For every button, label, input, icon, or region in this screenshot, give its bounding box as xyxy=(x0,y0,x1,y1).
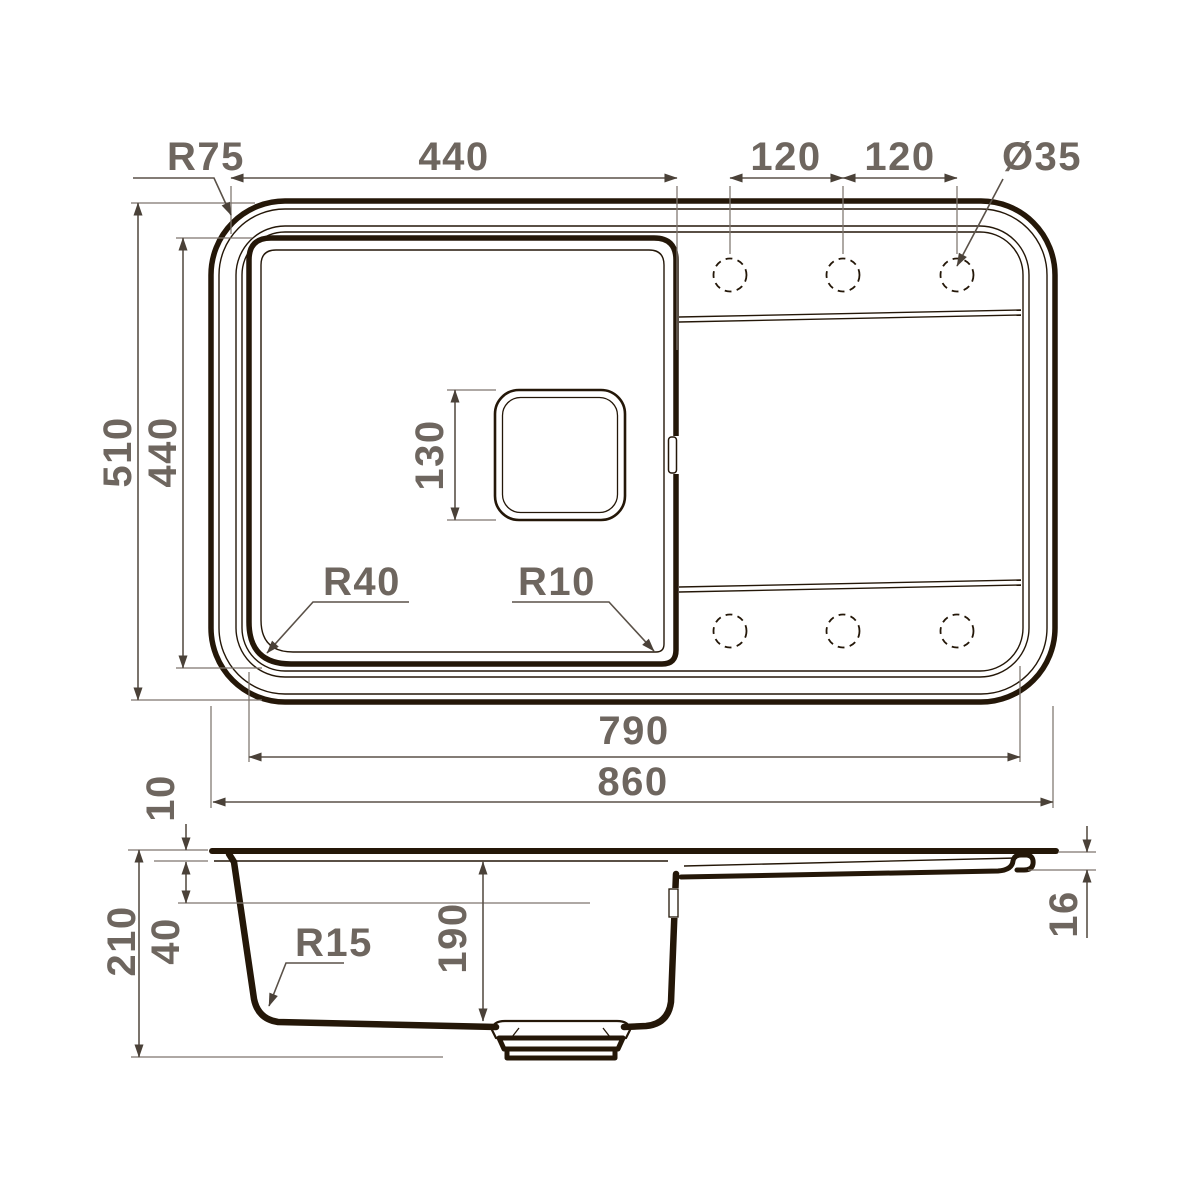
faucet-hole-icon xyxy=(714,615,747,648)
overall-depth-label: 510 xyxy=(96,416,140,487)
rim-height-label: 10 xyxy=(139,774,183,822)
faucet-hole-icon xyxy=(941,615,974,648)
edge-thickness-label: 16 xyxy=(1042,890,1086,938)
drawing-svg: R75 440 120 120 Ø35 510 440 130 R40 R10 … xyxy=(0,0,1200,1200)
sink-dimension-drawing: R75 440 120 120 Ø35 510 440 130 R40 R10 … xyxy=(0,0,1200,1200)
faucet-hole-icon xyxy=(827,615,860,648)
drain-area-corner-radius-label: R10 xyxy=(518,560,596,604)
bottom-corner-radius-label: R15 xyxy=(295,921,373,965)
top-view-outline xyxy=(211,201,1055,702)
leader-bowl-corner-radius xyxy=(267,602,409,653)
hole-pitch-right-label: 120 xyxy=(864,135,935,179)
bowl-depth-label: 440 xyxy=(141,416,185,487)
overall-height-label: 210 xyxy=(100,905,144,976)
drain-square-inner xyxy=(503,398,618,513)
upper-wall-depth-label: 40 xyxy=(144,917,188,965)
side-overflow-mask xyxy=(666,888,681,918)
drain-body-lower xyxy=(507,1049,615,1058)
hole-diameter-label: Ø35 xyxy=(1002,135,1082,179)
overall-length-label: 860 xyxy=(597,760,668,804)
leader-drain-area-corner-radius xyxy=(512,602,654,651)
drainboard-lines xyxy=(679,310,1021,592)
bowl-inner-depth-label: 190 xyxy=(431,902,475,973)
leader-bottom-corner-radius xyxy=(269,963,344,1006)
faucet-hole-icon xyxy=(941,259,974,292)
hole-pitch-left-label: 120 xyxy=(750,135,821,179)
sink-outer-edge-inner-line xyxy=(219,209,1047,694)
rim-inner-edge-line-1 xyxy=(236,226,1029,677)
faucet-hole-icon xyxy=(827,259,860,292)
bowl-outline xyxy=(249,238,676,664)
bowl-corner-radius-label: R40 xyxy=(323,560,401,604)
bowl-width-label: 440 xyxy=(418,135,489,179)
dimension-lines xyxy=(133,178,1087,1057)
inner-length-label: 790 xyxy=(598,709,669,753)
faucet-hole-icon xyxy=(714,259,747,292)
side-drainboard-top-line xyxy=(684,858,1017,866)
drain-square-outer xyxy=(495,390,625,520)
sink-outer-edge xyxy=(211,201,1055,702)
leader-hole-diameter xyxy=(957,179,1003,266)
rim-inner-edge-line-2 xyxy=(242,232,1023,671)
corner-radius-label: R75 xyxy=(167,135,245,179)
drain-assembly xyxy=(492,1021,630,1058)
drain-size-label: 130 xyxy=(408,419,452,490)
bowl-inner-line xyxy=(261,250,664,652)
leader-corner-radius xyxy=(133,178,231,215)
